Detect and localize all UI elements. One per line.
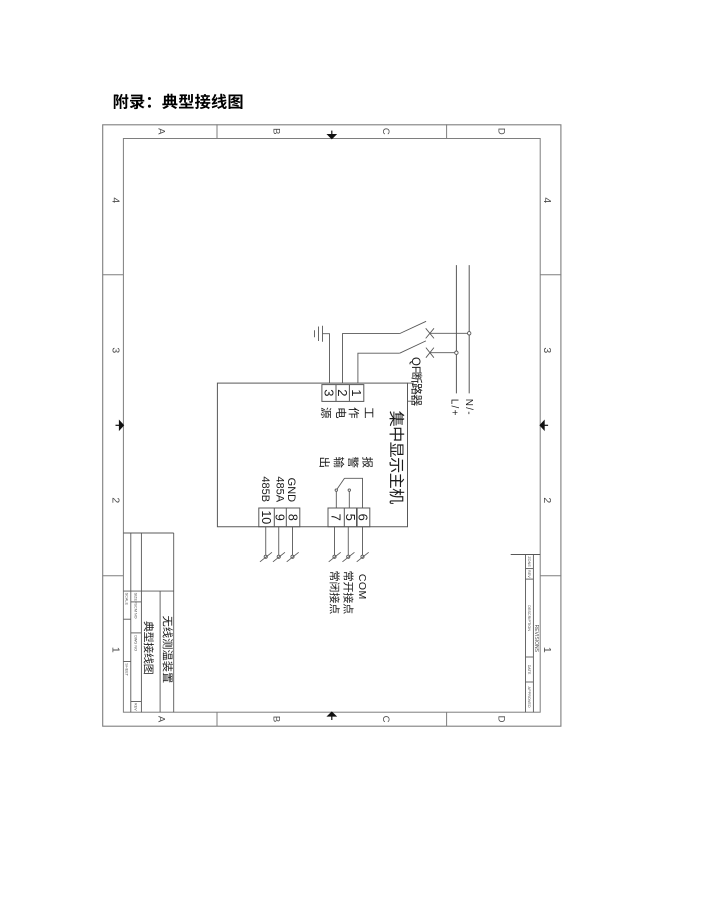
svg-text:7: 7 — [329, 514, 344, 521]
svg-text:2: 2 — [110, 497, 122, 503]
svg-text:5: 5 — [343, 514, 358, 521]
svg-text:1: 1 — [541, 647, 553, 653]
svg-text:FSCM NO: FSCM NO — [134, 601, 138, 619]
svg-text:D: D — [496, 716, 507, 723]
svg-text:L/+: L/+ — [449, 399, 460, 417]
svg-text:B: B — [270, 716, 281, 722]
svg-text:DATE: DATE — [527, 665, 531, 675]
svg-text:QF: QF — [409, 357, 421, 373]
svg-text:SHEET: SHEET — [124, 663, 128, 676]
svg-text:COM: COM — [356, 574, 368, 600]
svg-text:2: 2 — [541, 497, 553, 503]
svg-text:GND: GND — [285, 478, 297, 503]
svg-text:3: 3 — [541, 347, 553, 353]
svg-text:REV: REV — [134, 703, 138, 711]
svg-text:4: 4 — [541, 197, 553, 203]
svg-text:485B: 485B — [259, 476, 271, 502]
svg-text:SCALE: SCALE — [124, 593, 128, 606]
svg-text:ZONE: ZONE — [527, 556, 531, 567]
svg-text:DESCRIPTION: DESCRIPTION — [527, 605, 531, 631]
svg-text:REV: REV — [527, 570, 531, 578]
svg-text:DWG NO: DWG NO — [134, 635, 138, 651]
svg-text:APPROVED: APPROVED — [527, 687, 531, 708]
svg-text:3: 3 — [321, 389, 336, 396]
svg-text:3: 3 — [110, 347, 122, 353]
svg-text:A: A — [156, 716, 167, 723]
svg-text:C: C — [380, 716, 391, 723]
svg-text:C: C — [380, 128, 391, 135]
svg-text:A: A — [156, 128, 167, 135]
svg-text:10: 10 — [259, 510, 273, 524]
svg-text:485A: 485A — [274, 476, 286, 502]
svg-text:2: 2 — [335, 389, 350, 396]
svg-text:D: D — [496, 128, 507, 135]
svg-text:9: 9 — [273, 514, 287, 521]
svg-text:1: 1 — [110, 647, 122, 653]
svg-text:4: 4 — [110, 197, 122, 203]
svg-text:REVISIONS: REVISIONS — [533, 625, 539, 653]
svg-text:1: 1 — [349, 389, 364, 396]
svg-text:B: B — [270, 128, 281, 134]
svg-text:N/-: N/- — [463, 399, 474, 416]
